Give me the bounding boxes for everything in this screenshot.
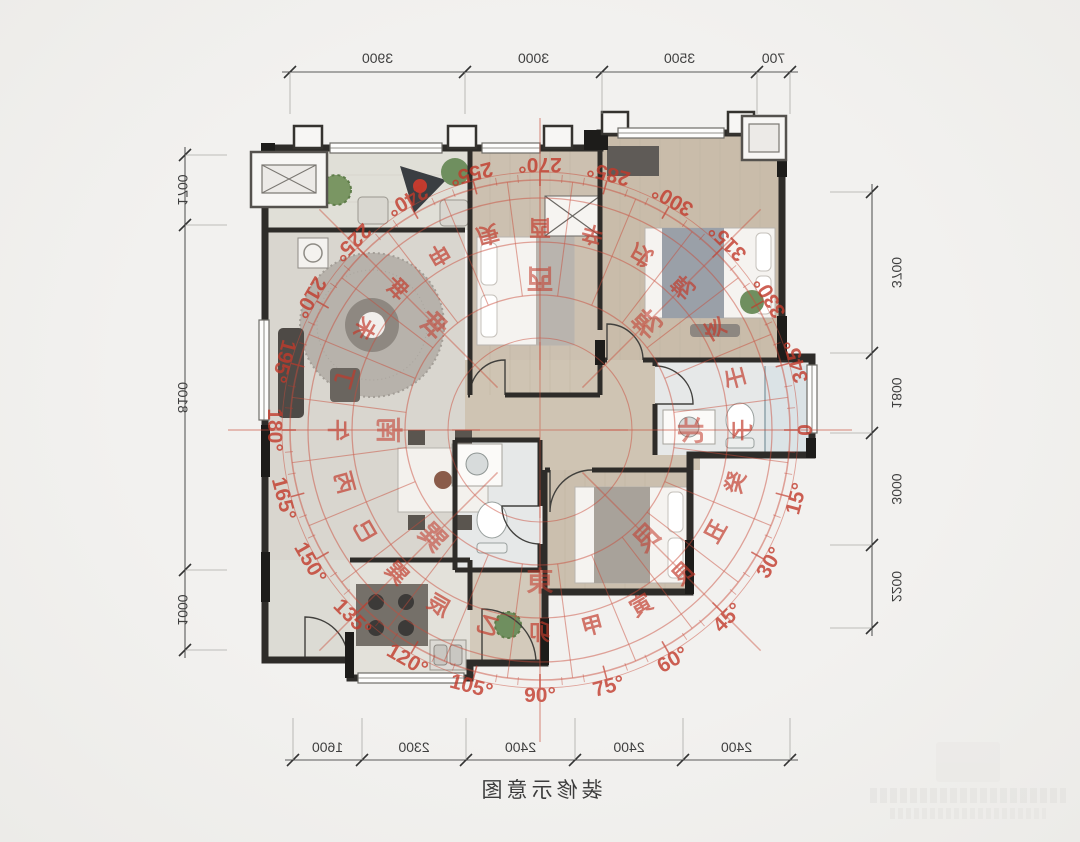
- degree-label-0: 0: [794, 424, 817, 436]
- dim-label: 2400: [721, 739, 752, 755]
- mountain-char-甲: 甲: [579, 611, 607, 641]
- dim-label: 1800: [889, 377, 905, 408]
- dining-chair: [408, 430, 425, 445]
- mountain-char-午: 午: [325, 419, 350, 441]
- degree-label-270: 270°: [518, 153, 561, 176]
- dim-label: 1600: [312, 739, 343, 755]
- burner: [368, 594, 384, 610]
- watermark-text-line: [890, 808, 1046, 819]
- degree-label-60: 60°: [653, 642, 692, 678]
- watermark-logo: [936, 742, 1000, 782]
- mountain-char-癸: 癸: [720, 468, 750, 498]
- basin: [466, 453, 488, 475]
- direction-char-西: 西: [527, 263, 554, 293]
- dim-label: 2200: [889, 571, 905, 602]
- degree-label-180: 180°: [263, 408, 286, 451]
- centerpiece: [434, 471, 452, 489]
- degree-label-75: 75°: [590, 671, 627, 701]
- direction-char-南: 南: [373, 417, 403, 444]
- dim-label: 3900: [362, 50, 393, 66]
- direction-char-北: 北: [677, 417, 707, 444]
- floor-plan-page: 015°30°45°60°75°90°105°120°135°150°165°1…: [0, 0, 1080, 842]
- watermark: [862, 742, 1072, 828]
- mountain-char-子: 子: [730, 419, 755, 441]
- degree-label-90: 90°: [524, 684, 556, 707]
- mountain-char-丑: 丑: [699, 515, 732, 547]
- luopan-compass-overlay: 015°30°45°60°75°90°105°120°135°150°165°1…: [228, 118, 852, 742]
- pillow: [668, 492, 683, 532]
- mountain-char-酉: 酉: [529, 215, 551, 240]
- dining-chair: [408, 515, 425, 530]
- dim-label: 3700: [889, 257, 905, 288]
- dim-label: 1000: [175, 594, 191, 625]
- ac-unit: [749, 124, 779, 152]
- burner: [398, 620, 414, 636]
- degree-label-15: 15°: [781, 480, 811, 517]
- dining-chair: [455, 515, 472, 530]
- pillow: [481, 295, 497, 337]
- degree-label-30: 30°: [752, 543, 788, 582]
- pillow: [756, 233, 771, 271]
- direction-char-東: 東: [527, 567, 554, 597]
- watermark-text-line: [870, 788, 1066, 803]
- dim-label: 1700: [175, 174, 191, 205]
- dim-label: 2400: [613, 739, 644, 755]
- dim-label: 3000: [518, 50, 549, 66]
- washing-machine: [298, 238, 328, 268]
- mountain-char-卯: 卯: [529, 620, 551, 645]
- dim-label: 2300: [398, 739, 429, 755]
- dim-label: 700: [762, 50, 786, 66]
- dim-label: 3000: [889, 473, 905, 504]
- dim-label: 2400: [505, 739, 536, 755]
- burner: [398, 594, 414, 610]
- dim-label: 3500: [664, 50, 695, 66]
- floor-plan-drawing: 015°30°45°60°75°90°105°120°135°150°165°1…: [0, 0, 1080, 842]
- dim-label: 8100: [175, 382, 191, 413]
